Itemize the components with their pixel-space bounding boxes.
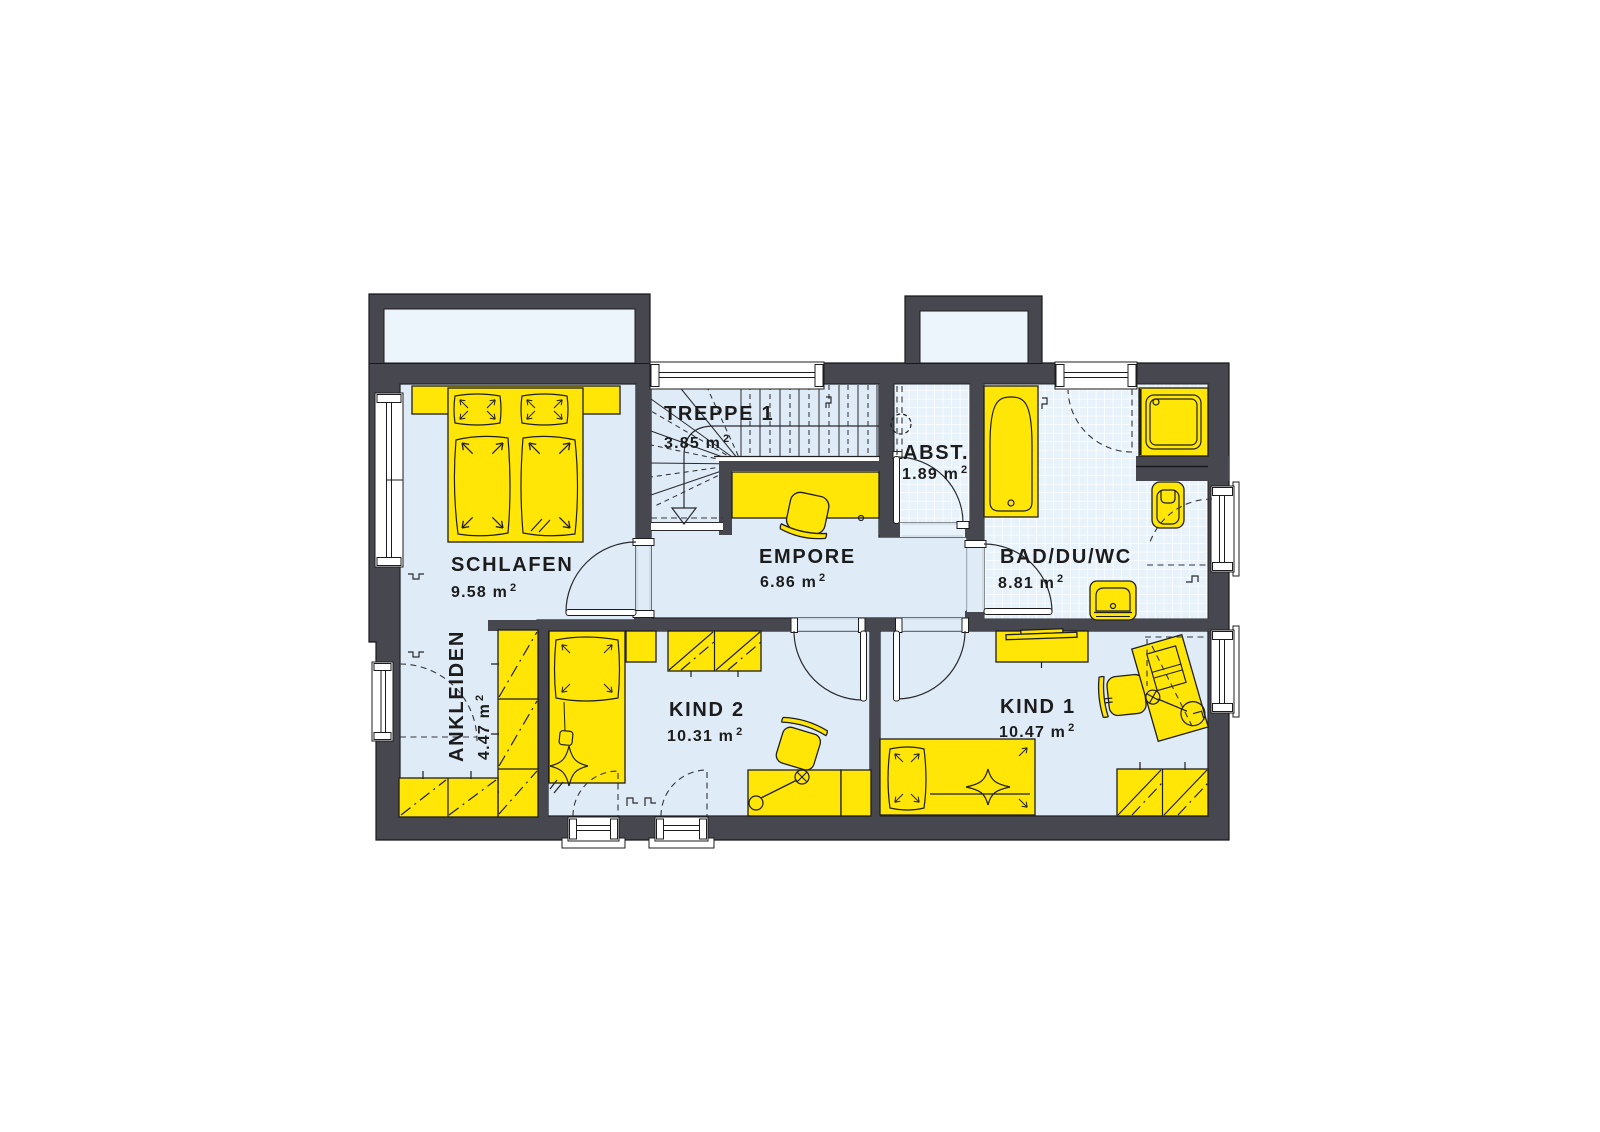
svg-text:10.47 m2: 10.47 m2 (999, 722, 1075, 741)
svg-text:TREPPE 1: TREPPE 1 (664, 403, 774, 425)
svg-text:EMPORE: EMPORE (759, 546, 856, 568)
svg-text:SCHLAFEN: SCHLAFEN (451, 554, 574, 576)
svg-text:10.31 m2: 10.31 m2 (667, 726, 743, 745)
svg-text:BAD/DU/WC: BAD/DU/WC (1000, 546, 1132, 568)
svg-text:KIND 1: KIND 1 (1000, 696, 1076, 718)
svg-text:3.85 m2: 3.85 m2 (664, 433, 730, 452)
svg-text:6.86 m2: 6.86 m2 (760, 572, 826, 591)
svg-text:4.47 m2: 4.47 m2 (474, 694, 493, 760)
svg-text:1.89 m2: 1.89 m2 (902, 464, 968, 483)
svg-text:9.58 m2: 9.58 m2 (451, 582, 517, 601)
svg-text:8.81 m2: 8.81 m2 (998, 573, 1064, 592)
svg-text:ABST.: ABST. (903, 442, 969, 464)
svg-text:KIND 2: KIND 2 (669, 699, 745, 721)
svg-text:ANKLEIDEN: ANKLEIDEN (446, 630, 468, 762)
